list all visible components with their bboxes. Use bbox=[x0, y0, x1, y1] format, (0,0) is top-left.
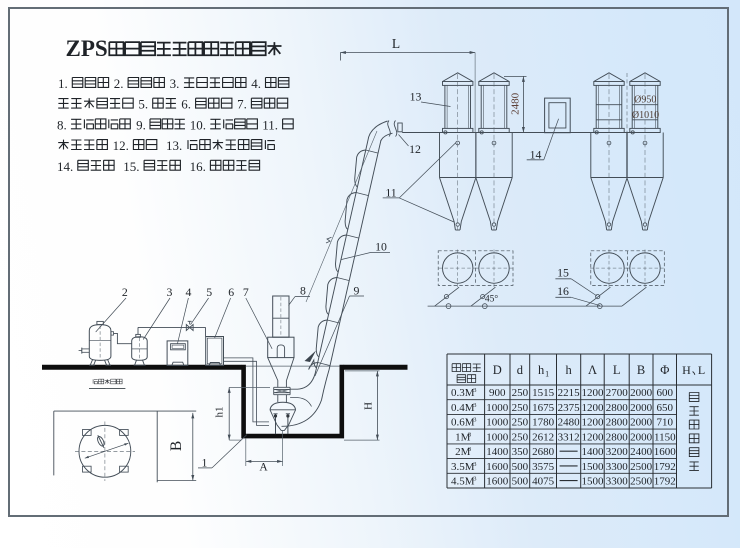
svg-text:3312: 3312 bbox=[558, 431, 580, 443]
svg-text:6: 6 bbox=[228, 285, 234, 299]
svg-text:1: 1 bbox=[202, 456, 208, 470]
svg-text:d: d bbox=[517, 363, 524, 377]
svg-text:14.: 14. bbox=[57, 159, 73, 174]
svg-text:9: 9 bbox=[354, 284, 360, 298]
svg-text:1792: 1792 bbox=[654, 475, 676, 487]
svg-text:3: 3 bbox=[473, 461, 476, 468]
svg-text:1000: 1000 bbox=[486, 417, 509, 429]
svg-text:Φ: Φ bbox=[660, 363, 669, 377]
svg-text:0.6M: 0.6M bbox=[451, 417, 475, 429]
svg-text:16: 16 bbox=[557, 284, 569, 298]
svg-text:B: B bbox=[168, 441, 185, 451]
svg-text:3: 3 bbox=[473, 402, 476, 409]
svg-text:Λ: Λ bbox=[588, 363, 597, 377]
svg-text:1000: 1000 bbox=[486, 431, 509, 443]
svg-text:10: 10 bbox=[375, 240, 387, 254]
svg-text:1500: 1500 bbox=[582, 475, 605, 487]
svg-text:10.: 10. bbox=[190, 117, 206, 132]
svg-text:Ø1010: Ø1010 bbox=[632, 110, 659, 121]
svg-text:3: 3 bbox=[473, 475, 476, 482]
svg-text:1600: 1600 bbox=[486, 475, 509, 487]
svg-text:2680: 2680 bbox=[532, 446, 555, 458]
svg-text:1: 1 bbox=[545, 370, 549, 379]
svg-text:250: 250 bbox=[512, 402, 529, 414]
svg-text:3: 3 bbox=[468, 446, 471, 453]
svg-text:13.: 13. bbox=[166, 138, 182, 153]
svg-text:1600: 1600 bbox=[654, 446, 677, 458]
svg-text:1400: 1400 bbox=[486, 446, 509, 458]
svg-text:4.5M: 4.5M bbox=[451, 475, 475, 487]
svg-text:13: 13 bbox=[410, 90, 422, 104]
svg-text:1000: 1000 bbox=[486, 402, 509, 414]
svg-text:5: 5 bbox=[206, 285, 212, 299]
svg-text:600: 600 bbox=[657, 387, 674, 399]
svg-text:B: B bbox=[637, 363, 645, 377]
svg-text:2375: 2375 bbox=[558, 402, 581, 414]
svg-text:2500: 2500 bbox=[630, 461, 653, 473]
svg-text:1675: 1675 bbox=[532, 402, 555, 414]
svg-text:2215: 2215 bbox=[558, 387, 581, 399]
svg-text:500: 500 bbox=[512, 461, 529, 473]
svg-text:H: H bbox=[682, 363, 691, 377]
svg-text:8: 8 bbox=[300, 284, 306, 298]
svg-text:4: 4 bbox=[185, 285, 191, 299]
svg-text:15.: 15. bbox=[123, 159, 139, 174]
svg-text:14: 14 bbox=[530, 148, 542, 162]
svg-text:Ø950: Ø950 bbox=[634, 94, 656, 105]
svg-text:1200: 1200 bbox=[582, 431, 605, 443]
svg-text:3: 3 bbox=[468, 431, 471, 438]
svg-text:3: 3 bbox=[473, 417, 476, 424]
svg-text:2500: 2500 bbox=[630, 475, 653, 487]
svg-text:900: 900 bbox=[489, 387, 506, 399]
svg-text:h1: h1 bbox=[214, 407, 226, 418]
svg-text:2000: 2000 bbox=[630, 417, 653, 429]
svg-text:h: h bbox=[565, 363, 572, 377]
svg-text:h: h bbox=[538, 363, 545, 377]
svg-text:2480: 2480 bbox=[558, 417, 581, 429]
svg-text:0.4M: 0.4M bbox=[451, 402, 475, 414]
svg-text:15: 15 bbox=[557, 266, 569, 280]
svg-text:4.: 4. bbox=[251, 76, 261, 91]
svg-text:1200: 1200 bbox=[582, 387, 605, 399]
svg-text:3300: 3300 bbox=[606, 475, 629, 487]
svg-text:3: 3 bbox=[473, 387, 476, 394]
svg-text:1780: 1780 bbox=[532, 417, 555, 429]
svg-text:16.: 16. bbox=[190, 159, 206, 174]
svg-text:500: 500 bbox=[512, 475, 529, 487]
svg-text:5.: 5. bbox=[138, 97, 148, 112]
svg-text:350: 350 bbox=[512, 446, 529, 458]
svg-text:710: 710 bbox=[657, 417, 674, 429]
svg-text:0.3M: 0.3M bbox=[451, 387, 475, 399]
svg-text:L: L bbox=[698, 363, 705, 377]
svg-text:2.: 2. bbox=[114, 76, 124, 91]
svg-text:2800: 2800 bbox=[606, 431, 629, 443]
svg-text:4075: 4075 bbox=[532, 475, 555, 487]
svg-text:H: H bbox=[363, 402, 375, 410]
svg-text:9.: 9. bbox=[136, 117, 146, 132]
svg-text:A: A bbox=[259, 462, 268, 474]
svg-text:1515: 1515 bbox=[532, 387, 555, 399]
svg-text:1150: 1150 bbox=[654, 431, 676, 443]
svg-text:L: L bbox=[613, 363, 621, 377]
svg-text:3.5M: 3.5M bbox=[451, 461, 475, 473]
svg-text:7.: 7. bbox=[237, 97, 247, 112]
svg-text:250: 250 bbox=[512, 417, 529, 429]
svg-text:1400: 1400 bbox=[582, 446, 605, 458]
svg-text:2800: 2800 bbox=[606, 417, 629, 429]
svg-text:2400: 2400 bbox=[630, 446, 653, 458]
svg-text:650: 650 bbox=[657, 402, 674, 414]
svg-text:250: 250 bbox=[512, 431, 529, 443]
svg-text:250: 250 bbox=[512, 387, 529, 399]
svg-text:3: 3 bbox=[166, 285, 172, 299]
svg-text:45°: 45° bbox=[485, 294, 499, 305]
svg-text:11.: 11. bbox=[262, 117, 278, 132]
svg-text:1200: 1200 bbox=[582, 417, 605, 429]
svg-text:2700: 2700 bbox=[606, 387, 629, 399]
svg-text:1200: 1200 bbox=[582, 402, 605, 414]
svg-text:D: D bbox=[493, 363, 502, 377]
svg-text:7: 7 bbox=[243, 285, 249, 299]
svg-text:3.: 3. bbox=[170, 76, 180, 91]
svg-text:12: 12 bbox=[409, 142, 421, 156]
svg-text:L: L bbox=[392, 36, 400, 51]
svg-text:1600: 1600 bbox=[486, 461, 509, 473]
svg-text:3300: 3300 bbox=[606, 461, 629, 473]
svg-text:6.: 6. bbox=[181, 97, 191, 112]
svg-text:3200: 3200 bbox=[606, 446, 629, 458]
svg-text:1.: 1. bbox=[58, 76, 68, 91]
svg-text:2000: 2000 bbox=[630, 402, 653, 414]
svg-text:8.: 8. bbox=[57, 117, 67, 132]
svg-text:2612: 2612 bbox=[532, 431, 554, 443]
svg-text:3575: 3575 bbox=[532, 461, 555, 473]
svg-text:11: 11 bbox=[385, 186, 396, 200]
svg-text:2000: 2000 bbox=[630, 431, 653, 443]
svg-text:12.: 12. bbox=[113, 138, 129, 153]
svg-text:ZPS: ZPS bbox=[66, 36, 108, 61]
svg-text:2800: 2800 bbox=[606, 402, 629, 414]
svg-text:2000: 2000 bbox=[630, 387, 653, 399]
svg-text:1500: 1500 bbox=[582, 461, 605, 473]
svg-text:2480: 2480 bbox=[510, 92, 522, 115]
svg-text:2: 2 bbox=[122, 285, 128, 299]
svg-text:1792: 1792 bbox=[654, 461, 676, 473]
